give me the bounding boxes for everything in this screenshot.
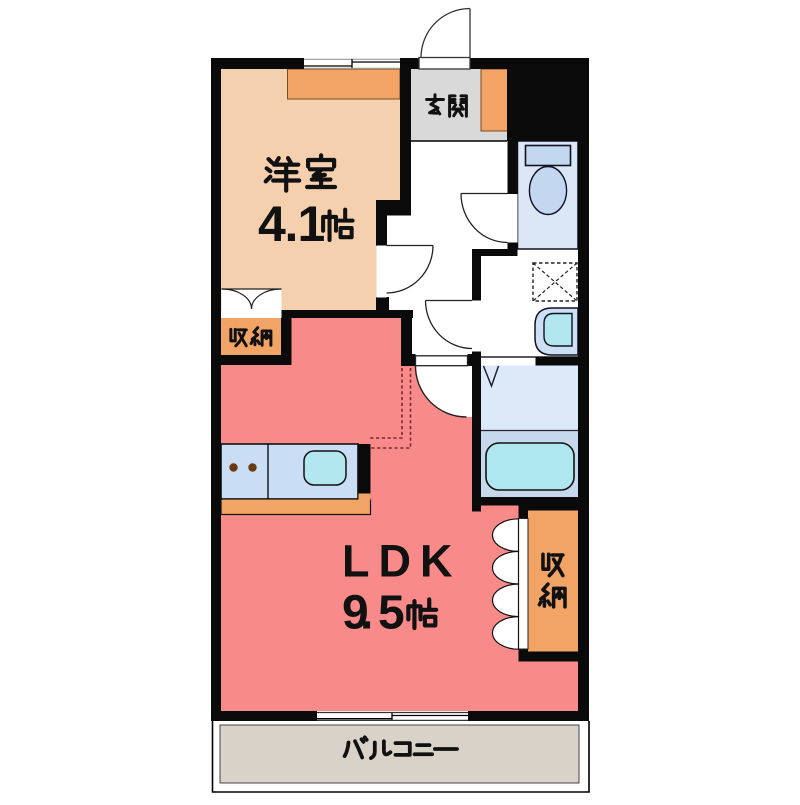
- svg-text:.: .: [285, 196, 299, 252]
- svg-text:LDK: LDK: [342, 536, 461, 587]
- svg-text:.: .: [360, 587, 373, 640]
- svg-text:4: 4: [258, 196, 286, 252]
- svg-text:5: 5: [378, 587, 405, 640]
